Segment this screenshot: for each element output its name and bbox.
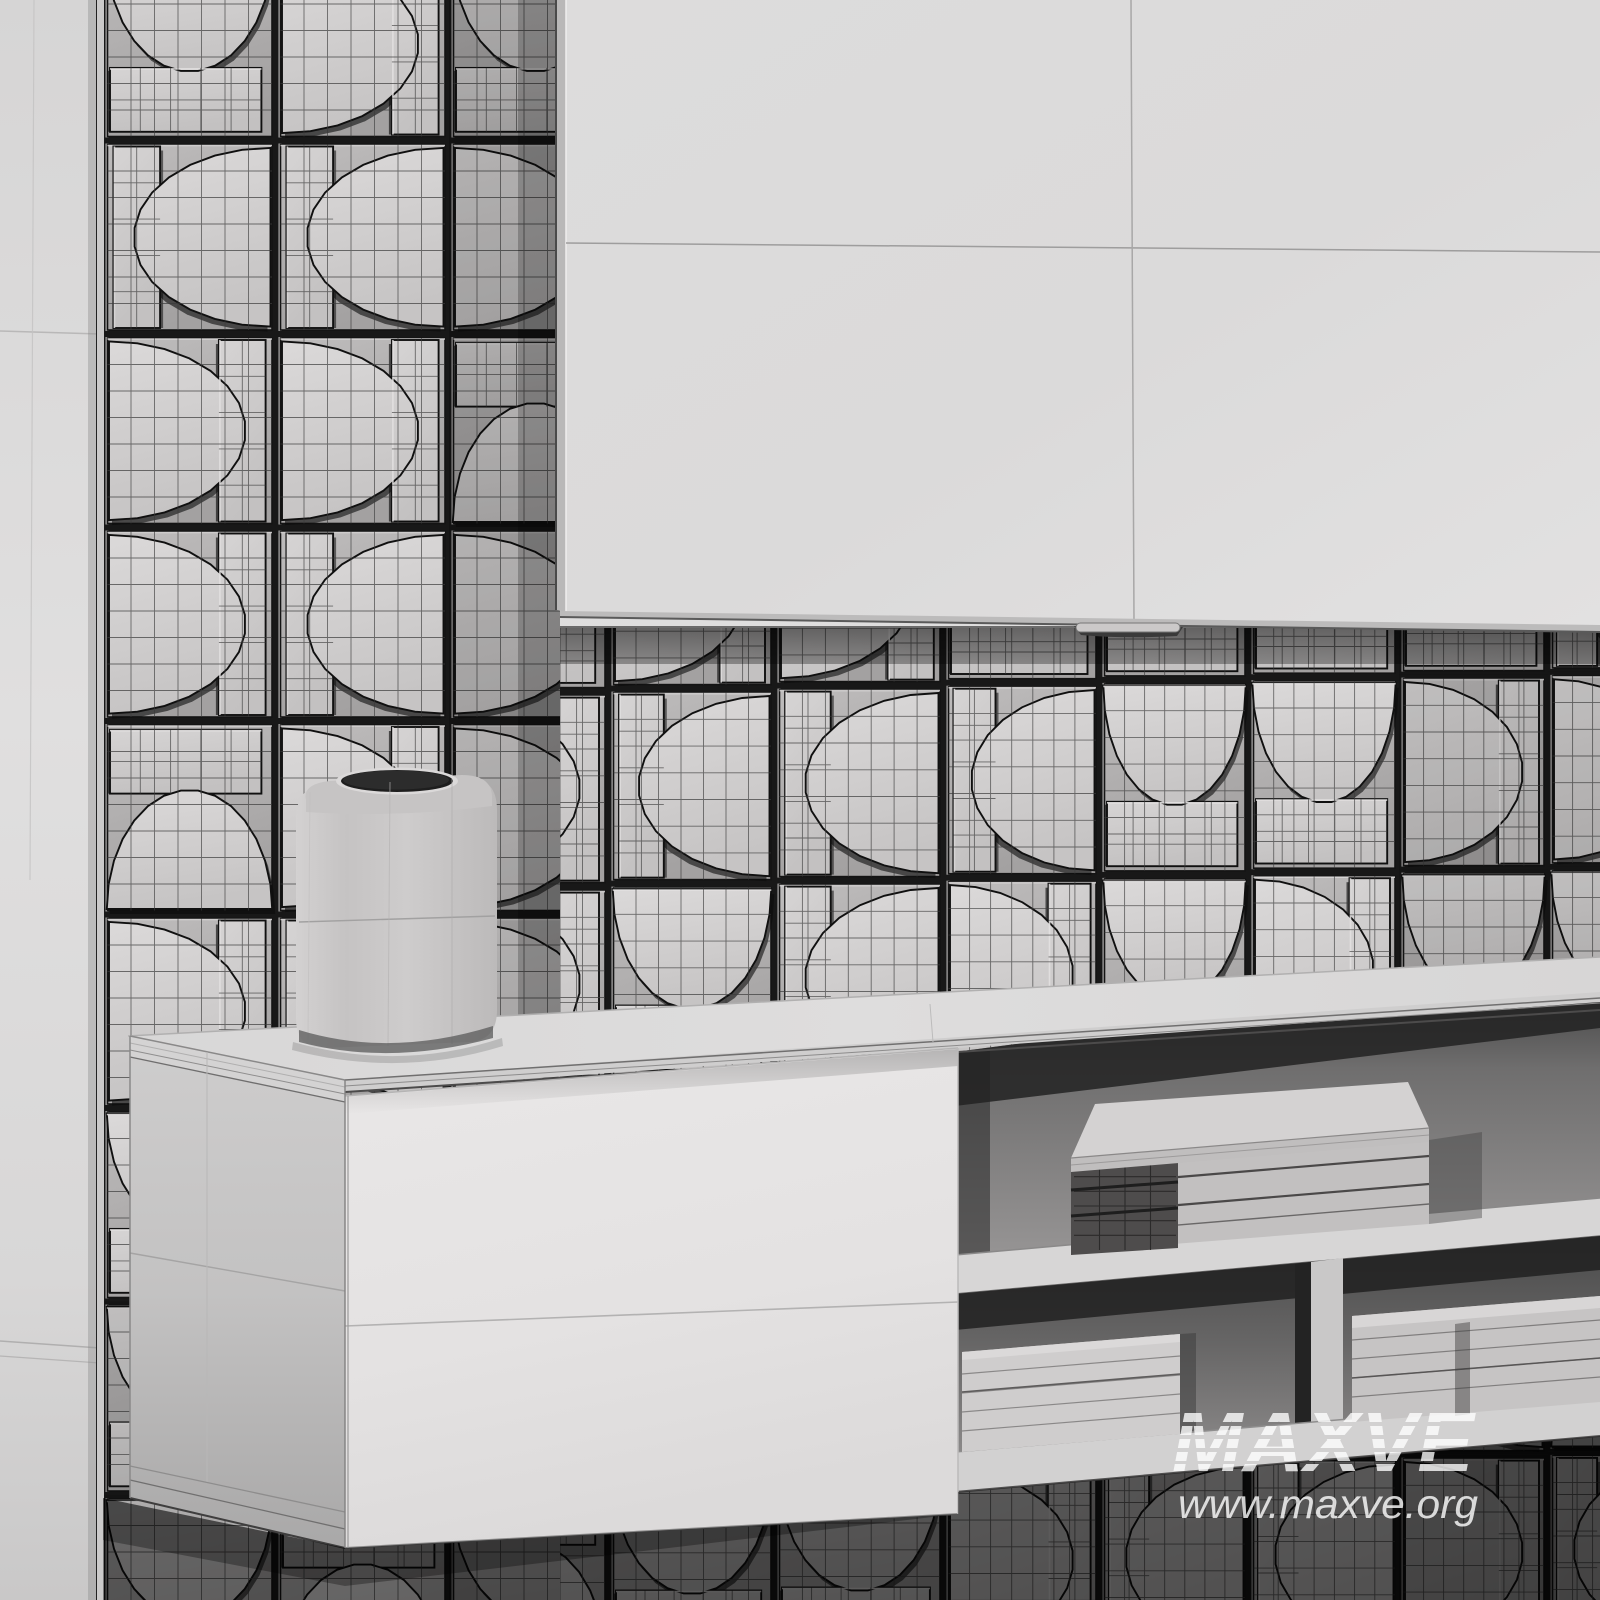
svg-text:MAXVE: MAXVE bbox=[1172, 1394, 1477, 1490]
svg-text:www.maxve.org: www.maxve.org bbox=[1178, 1481, 1478, 1527]
